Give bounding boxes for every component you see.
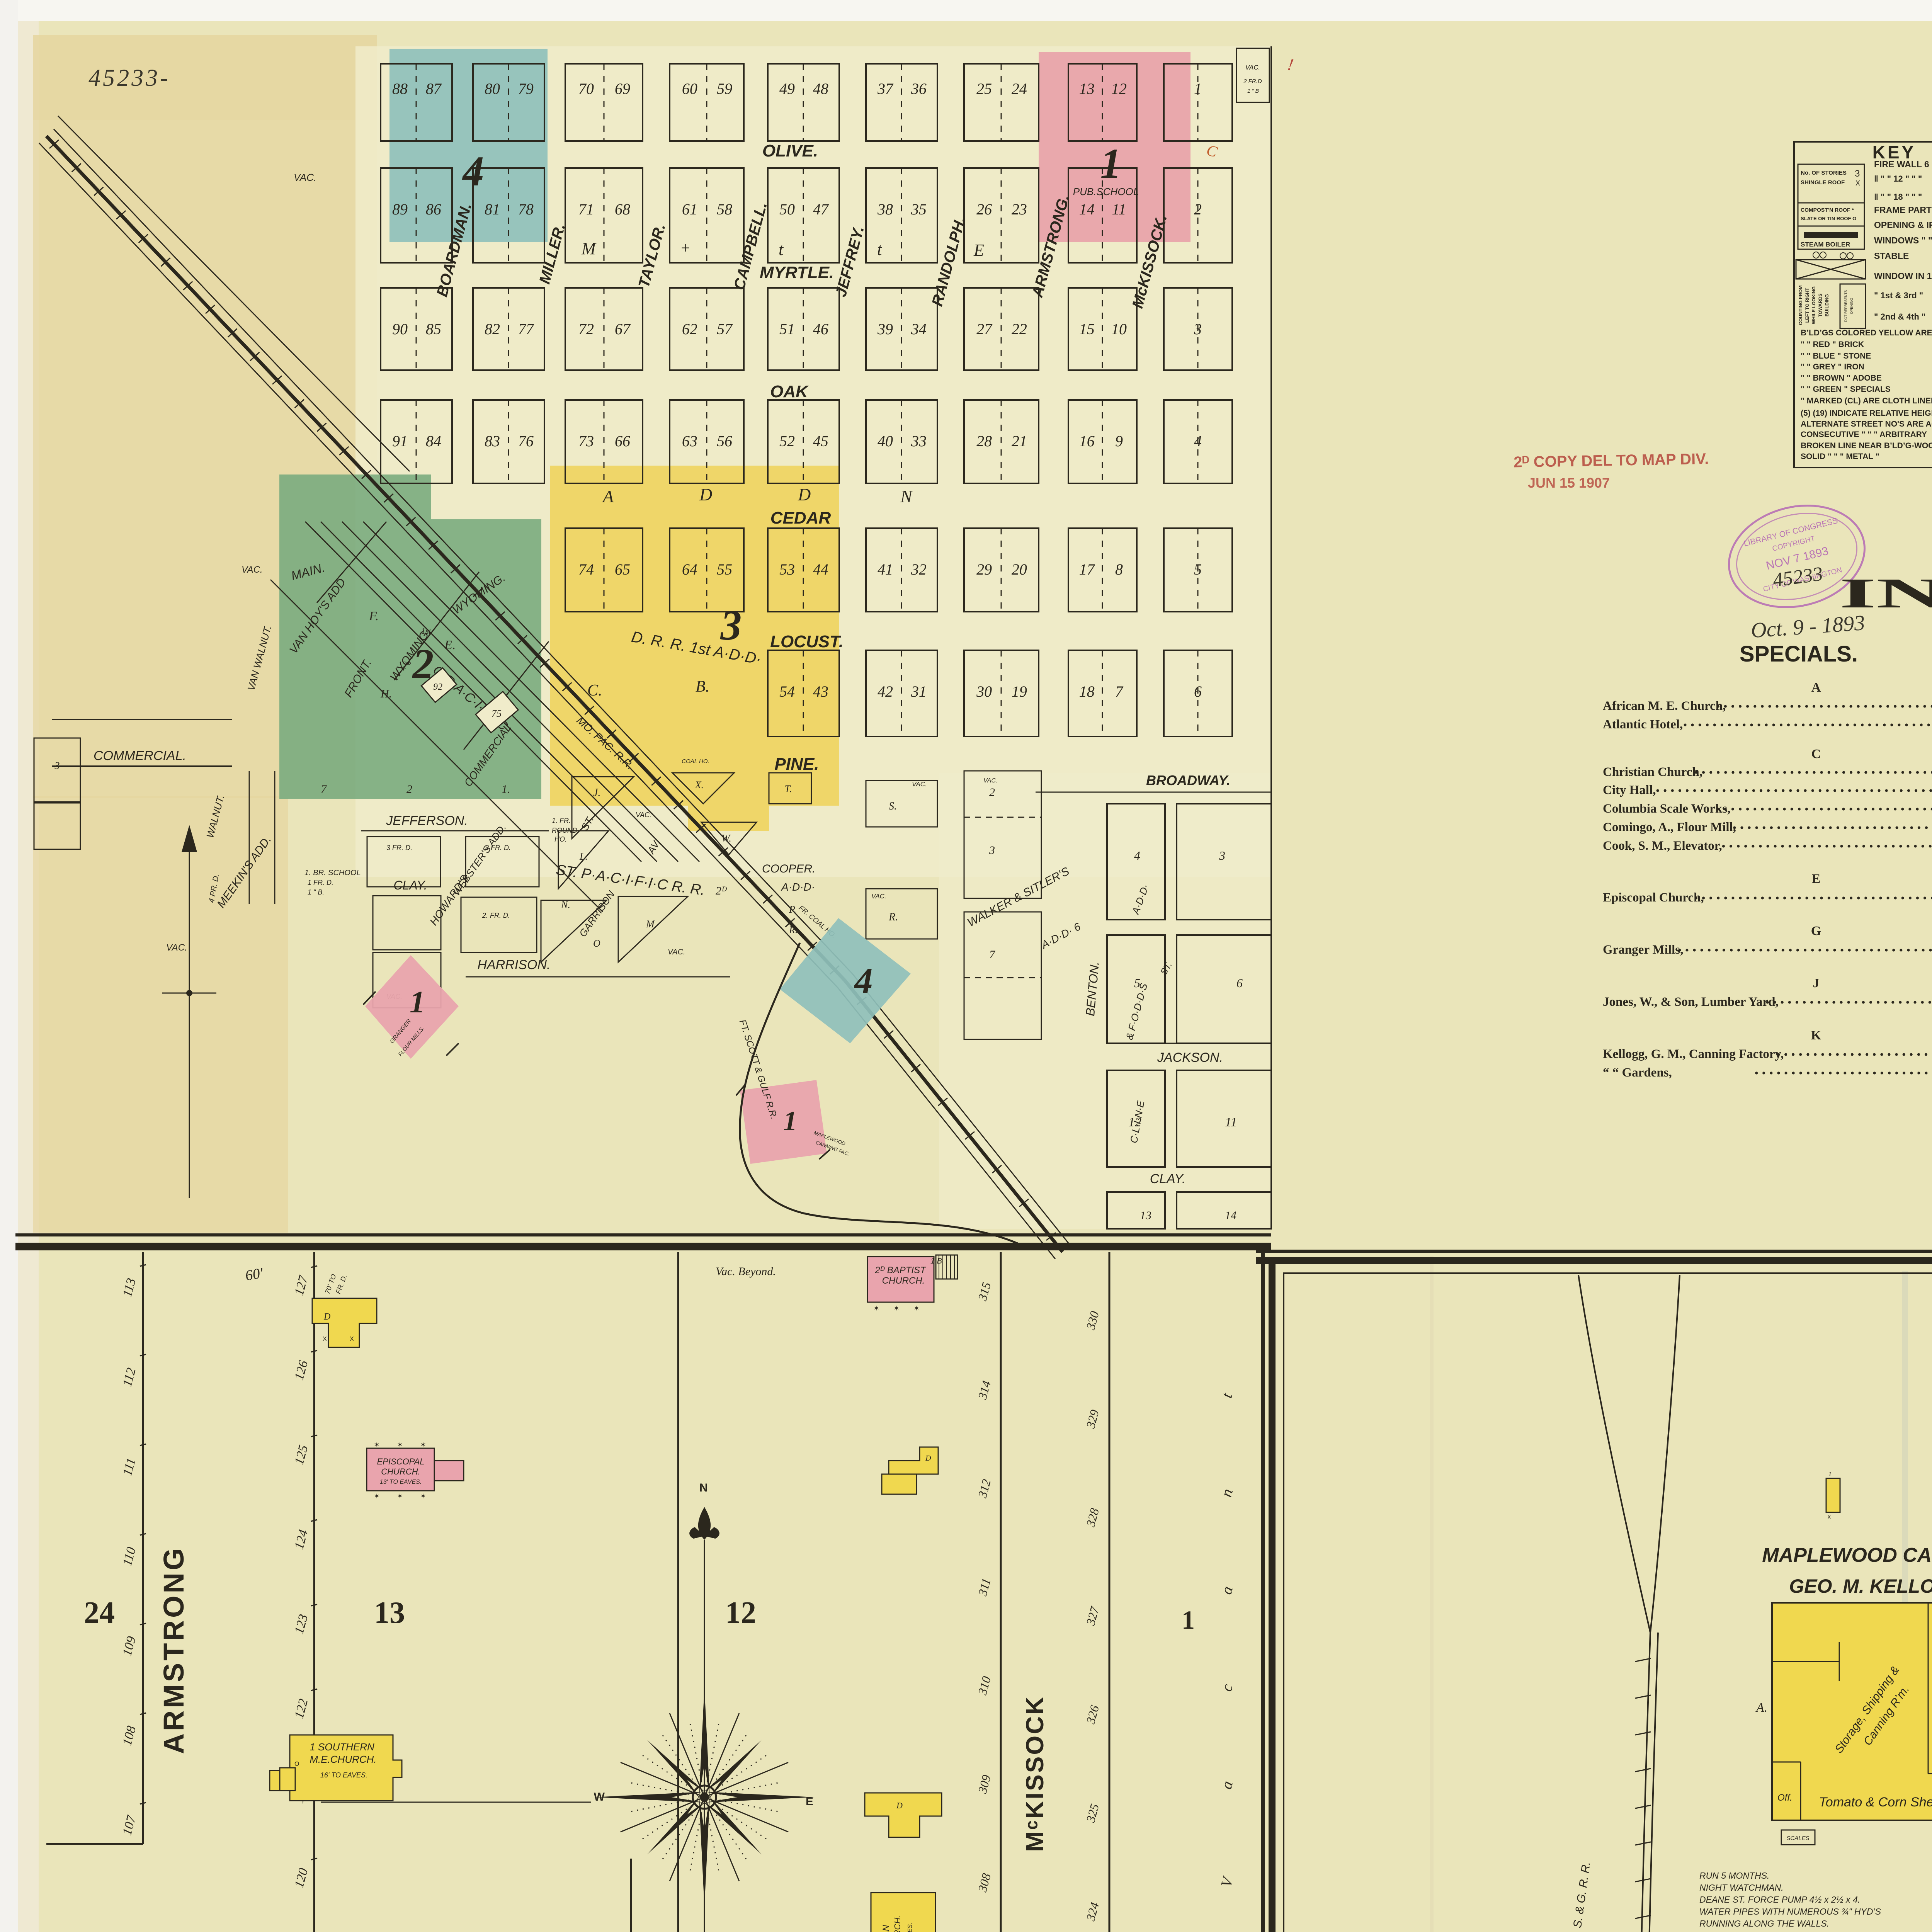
svg-text:Atlantic Hotel,: Atlantic Hotel, xyxy=(1603,718,1683,731)
svg-text:12: 12 xyxy=(725,1596,756,1630)
svg-text:18: 18 xyxy=(1079,683,1095,700)
svg-text:VAC.: VAC. xyxy=(241,565,263,575)
svg-text:✶: ✶ xyxy=(913,1304,919,1312)
svg-text:N.: N. xyxy=(561,899,570,910)
svg-text:Cook, S. M., Elevator,: Cook, S. M., Elevator, xyxy=(1603,839,1722,853)
svg-text:8: 8 xyxy=(1115,561,1123,578)
svg-text:40: 40 xyxy=(878,432,893,450)
svg-text:S.: S. xyxy=(889,800,897,812)
svg-text:VAC.: VAC. xyxy=(1245,64,1260,71)
svg-text:D: D xyxy=(699,485,712,504)
svg-text:RUN 5 MONTHS.: RUN 5 MONTHS. xyxy=(1699,1871,1769,1881)
svg-text:47: 47 xyxy=(813,201,829,218)
svg-text:EPISCOPAL: EPISCOPAL xyxy=(377,1457,424,1466)
svg-text:CEDAR: CEDAR xyxy=(770,509,831,527)
svg-text:88: 88 xyxy=(392,80,408,97)
svg-text:50: 50 xyxy=(779,201,795,218)
svg-text:24: 24 xyxy=(84,1596,115,1630)
svg-text:AFRICAN: AFRICAN xyxy=(881,1925,891,1932)
svg-text:11: 11 xyxy=(1225,1115,1237,1129)
svg-text:5: 5 xyxy=(1194,561,1202,578)
svg-text:59: 59 xyxy=(717,80,732,97)
svg-text:SOLID " " ": SOLID " " " METAL " xyxy=(1801,452,1879,461)
svg-text:X: X xyxy=(1855,179,1860,187)
svg-text:✶: ✶ xyxy=(873,1304,879,1312)
svg-text:VAC.: VAC. xyxy=(668,948,685,956)
svg-text:38: 38 xyxy=(877,201,893,218)
svg-text:" " BLUE: " " BLUE " STONE xyxy=(1801,352,1871,361)
svg-text:44: 44 xyxy=(813,561,828,578)
svg-text:SLATE OR TIN ROOF O: SLATE OR TIN ROOF O xyxy=(1801,216,1856,221)
svg-text:12: 12 xyxy=(1111,80,1127,97)
svg-text:" " BROWN ": " " BROWN " ADOBE xyxy=(1801,374,1882,383)
svg-text:GEO. M. KELLOGG.: GEO. M. KELLOGG. xyxy=(1789,1575,1932,1597)
svg-text:HO.: HO. xyxy=(554,835,567,843)
svg-text:COMMERCIAL.: COMMERCIAL. xyxy=(94,748,186,763)
svg-text:Granger Mills,: Granger Mills, xyxy=(1603,943,1683,957)
svg-text:✶: ✶ xyxy=(374,1492,379,1500)
svg-text:" 1st & 3rd ": " 1st & 3rd " xyxy=(1874,291,1923,300)
svg-text:STEAM BOILER: STEAM BOILER xyxy=(1801,241,1850,248)
svg-text:3: 3 xyxy=(1219,849,1225,862)
svg-text:11: 11 xyxy=(1112,201,1126,218)
svg-text:3: 3 xyxy=(1855,168,1860,179)
svg-text:76: 76 xyxy=(518,432,534,450)
svg-text:" " GREY: " " GREY " IRON xyxy=(1801,362,1864,371)
svg-text:LEFT TO RIGHT: LEFT TO RIGHT xyxy=(1804,287,1810,323)
svg-text:X.: X. xyxy=(695,779,704,791)
svg-text:4: 4 xyxy=(462,148,484,195)
svg-text:2: 2 xyxy=(1194,201,1202,218)
svg-text:82: 82 xyxy=(485,320,500,338)
svg-text:O: O xyxy=(294,1761,299,1767)
svg-text:MᶜKISSOCK: MᶜKISSOCK xyxy=(1021,1695,1049,1852)
svg-text:D: D xyxy=(896,1801,903,1810)
svg-text:31: 31 xyxy=(911,683,927,700)
svg-text:WHILE LOOKING: WHILE LOOKING xyxy=(1811,286,1816,324)
svg-text:C.: C. xyxy=(587,682,602,699)
svg-text:90: 90 xyxy=(392,320,408,338)
svg-text:BROKEN LINE NEAR B’LD’G-WOOD C: BROKEN LINE NEAR B’LD’G-WOOD CORNICE xyxy=(1801,441,1932,450)
svg-text:SPECIALS.: SPECIALS. xyxy=(1740,641,1858,667)
svg-text:3 FR. D.: 3 FR. D. xyxy=(386,844,412,852)
svg-text:92: 92 xyxy=(433,682,442,692)
svg-text:FIRE WALL 6 IN. AB. ROOF: FIRE WALL 6 IN. AB. ROOF xyxy=(1874,159,1932,169)
svg-text:7: 7 xyxy=(989,948,996,961)
svg-text:✶: ✶ xyxy=(397,1441,403,1449)
svg-text:1 FR. D.: 1 FR. D. xyxy=(308,879,333,886)
svg-text:85: 85 xyxy=(426,320,441,338)
svg-text:Vac. Beyond.: Vac. Beyond. xyxy=(716,1265,776,1278)
svg-text:LOCUST.: LOCUST. xyxy=(770,632,844,651)
svg-text:71: 71 xyxy=(578,201,594,218)
svg-text:25: 25 xyxy=(976,80,992,97)
svg-text:32: 32 xyxy=(911,561,927,578)
svg-text:‖ " " 18 " " ": ‖ " " 18 " " " xyxy=(1874,192,1922,202)
svg-text:" 2nd & 4th ": " 2nd & 4th " xyxy=(1874,312,1925,321)
svg-text:35: 35 xyxy=(911,201,927,218)
svg-text:86: 86 xyxy=(426,201,441,218)
svg-text:37: 37 xyxy=(877,80,894,97)
svg-text:x: x xyxy=(1828,1514,1831,1520)
svg-text:Comingo, A., Flour Mill,: Comingo, A., Flour Mill, xyxy=(1603,820,1736,834)
svg-text:1.: 1. xyxy=(502,783,510,796)
svg-text:13: 13 xyxy=(1079,80,1095,97)
svg-text:58: 58 xyxy=(717,201,732,218)
svg-text:City Hall,: City Hall, xyxy=(1603,783,1656,797)
svg-text:22: 22 xyxy=(1012,320,1027,338)
svg-text:VAC.: VAC. xyxy=(912,781,927,788)
svg-text:49: 49 xyxy=(779,80,795,97)
svg-text:46: 46 xyxy=(813,320,828,338)
svg-text:C: C xyxy=(1811,747,1821,761)
svg-text:4: 4 xyxy=(854,960,873,1001)
svg-text:ALTERNATE STREET NO'S ARE ACTU: ALTERNATE STREET NO'S ARE ACTUAL xyxy=(1801,420,1932,429)
svg-text:27: 27 xyxy=(976,320,993,338)
svg-text:P.: P. xyxy=(789,904,796,915)
svg-text:2ᴰ COPY DEL TO MAP DIV.: 2ᴰ COPY DEL TO MAP DIV. xyxy=(1514,451,1709,471)
svg-text:69: 69 xyxy=(615,80,630,97)
svg-text:(5) (19) INDICATE RELATIVE HEI: (5) (19) INDICATE RELATIVE HEIGHTS xyxy=(1801,409,1932,418)
svg-text:COOPER.: COOPER. xyxy=(762,862,815,875)
svg-text:SHINGLE ROOF: SHINGLE ROOF xyxy=(1801,179,1845,186)
svg-text:M.: M. xyxy=(646,918,657,930)
svg-text:M: M xyxy=(581,239,597,258)
svg-text:H.: H. xyxy=(380,687,392,700)
svg-text:✶: ✶ xyxy=(420,1492,426,1500)
svg-text:WATER PIPES WITH NUMEROUS ¾" H: WATER PIPES WITH NUMEROUS ¾" HYD’S xyxy=(1699,1906,1881,1917)
svg-text:61: 61 xyxy=(682,201,697,218)
svg-text:10: 10 xyxy=(1111,320,1127,338)
svg-text:African M. E. Church,: African M. E. Church, xyxy=(1603,699,1726,713)
svg-text:A.: A. xyxy=(1755,1701,1767,1715)
svg-text:Episcopal Church,: Episcopal Church, xyxy=(1603,891,1704,905)
svg-text:1: 1 xyxy=(1100,140,1122,187)
svg-text:RUNNING ALONG THE WALLS.: RUNNING ALONG THE WALLS. xyxy=(1699,1918,1829,1929)
svg-text:D: D xyxy=(798,485,811,504)
svg-text:J.: J. xyxy=(593,787,600,799)
svg-text:Kellogg, G. M., Canning Factor: Kellogg, G. M., Canning Factory, xyxy=(1603,1047,1784,1061)
svg-text:14: 14 xyxy=(1225,1209,1236,1222)
svg-text:F.: F. xyxy=(369,609,379,623)
svg-text:OLIVE.: OLIVE. xyxy=(762,141,818,160)
svg-text:2: 2 xyxy=(989,786,995,799)
svg-text:74: 74 xyxy=(578,561,594,578)
svg-text:BROADWAY.: BROADWAY. xyxy=(1146,772,1230,788)
svg-text:CHURCH.: CHURCH. xyxy=(882,1276,925,1286)
svg-text:78: 78 xyxy=(518,201,534,218)
svg-text:OAK: OAK xyxy=(770,382,809,401)
svg-text:J: J xyxy=(1813,976,1820,990)
svg-text:PUB.SCHOOL: PUB.SCHOOL xyxy=(1073,186,1139,197)
svg-text:53: 53 xyxy=(779,561,795,578)
svg-text:A: A xyxy=(602,486,614,506)
svg-text:“ “ Gardens,: “ “ Gardens, xyxy=(1603,1066,1672,1080)
svg-text:54: 54 xyxy=(779,683,795,700)
svg-text:16' TO EAVES.: 16' TO EAVES. xyxy=(320,1771,367,1779)
svg-text:R.: R. xyxy=(888,911,898,923)
svg-text:R.: R. xyxy=(789,924,798,935)
svg-text:73: 73 xyxy=(578,432,594,450)
svg-text:✶: ✶ xyxy=(420,1441,426,1449)
svg-text:E.: E. xyxy=(444,638,456,652)
svg-text:36: 36 xyxy=(911,80,927,97)
svg-text:29: 29 xyxy=(976,561,992,578)
svg-text:VAC.: VAC. xyxy=(636,811,651,819)
svg-text:60': 60' xyxy=(244,1265,265,1284)
svg-text:79: 79 xyxy=(518,80,534,97)
svg-text:9: 9 xyxy=(1115,432,1123,450)
svg-text:T.: T. xyxy=(784,783,792,794)
svg-text:4: 4 xyxy=(1194,432,1202,450)
svg-text:BUILDING: BUILDING xyxy=(1824,294,1830,316)
svg-text:20: 20 xyxy=(1012,561,1027,578)
svg-text:45233-: 45233- xyxy=(88,65,170,91)
svg-text:t: t xyxy=(877,240,883,259)
svg-text:Columbia Scale Works,: Columbia Scale Works, xyxy=(1603,802,1730,816)
svg-text:28: 28 xyxy=(976,432,992,450)
svg-text:19: 19 xyxy=(1012,683,1027,700)
svg-text:30: 30 xyxy=(976,683,992,700)
svg-text:A: A xyxy=(1811,680,1821,695)
svg-text:80: 80 xyxy=(485,80,500,97)
svg-text:55: 55 xyxy=(717,561,732,578)
svg-text:1st: 1st xyxy=(421,626,432,636)
svg-text:E: E xyxy=(973,241,984,260)
svg-text:63: 63 xyxy=(682,432,697,450)
svg-text:1: 1 xyxy=(783,1105,797,1136)
svg-text:E: E xyxy=(1812,872,1821,886)
svg-text:WINDOW IN 1st STORY: WINDOW IN 1st STORY xyxy=(1874,271,1932,281)
svg-text:" MARKED (CL) ARE CLOTH LIN: " MARKED (CL) ARE CLOTH LINED xyxy=(1801,396,1932,405)
svg-text:JEFFERSON.: JEFFERSON. xyxy=(386,813,468,828)
svg-text:WINDOWS " " SHUTTERS: WINDOWS " " SHUTTERS xyxy=(1874,235,1932,245)
svg-text:42: 42 xyxy=(878,683,893,700)
svg-text:✶: ✶ xyxy=(397,1492,403,1500)
svg-text:COMPOST'N ROOF *: COMPOST'N ROOF * xyxy=(1801,207,1854,213)
svg-text:7: 7 xyxy=(1115,683,1124,700)
svg-text:‖ " " 12 " " ": ‖ " " 12 " " " xyxy=(1874,174,1922,184)
svg-text:" " RED: " " RED " BRICK xyxy=(1801,340,1864,349)
svg-text:1: 1 xyxy=(1194,80,1202,97)
svg-text:OPENING: OPENING xyxy=(1850,298,1854,314)
svg-text:51: 51 xyxy=(779,320,795,338)
svg-text:2 FR.D: 2 FR.D xyxy=(1243,78,1262,85)
svg-text:81: 81 xyxy=(485,201,500,218)
svg-text:43: 43 xyxy=(813,683,828,700)
svg-text:56: 56 xyxy=(717,432,732,450)
svg-text:100’ ¾" HOSE.: 100’ ¾" HOSE. xyxy=(1699,1930,1759,1932)
svg-text:60: 60 xyxy=(682,80,697,97)
svg-text:2. FR. D.: 2. FR. D. xyxy=(482,912,510,919)
svg-text:45: 45 xyxy=(813,432,828,450)
svg-text:O: O xyxy=(593,938,600,949)
svg-text:X: X xyxy=(350,1336,354,1342)
svg-text:✶: ✶ xyxy=(374,1441,379,1449)
svg-text:A·D·D·: A·D·D· xyxy=(781,881,815,893)
svg-text:6: 6 xyxy=(1194,683,1202,700)
svg-text:W.: W. xyxy=(721,833,731,844)
svg-text:75: 75 xyxy=(492,708,502,719)
svg-text:6: 6 xyxy=(1236,976,1243,990)
svg-text:2: 2 xyxy=(406,783,412,796)
svg-text:JACKSON.: JACKSON. xyxy=(1157,1050,1223,1065)
svg-text:3: 3 xyxy=(720,602,742,649)
svg-text:N: N xyxy=(699,1481,708,1494)
svg-text:52: 52 xyxy=(779,432,795,450)
svg-text:4: 4 xyxy=(1134,849,1140,862)
svg-text:64: 64 xyxy=(682,561,697,578)
svg-text:DOT REPRESENTS: DOT REPRESENTS xyxy=(1844,290,1848,322)
svg-text:B’LD’GS COLORED YELLOW ARE FRA: B’LD’GS COLORED YELLOW ARE FRAME xyxy=(1801,328,1932,337)
svg-text:62: 62 xyxy=(682,320,697,338)
svg-text:13' TO EAVES.: 13' TO EAVES. xyxy=(380,1479,422,1485)
svg-text:2ᴰ: 2ᴰ xyxy=(716,884,727,897)
svg-text:STABLE: STABLE xyxy=(1874,251,1909,261)
svg-text:Tomato & Corn Shed.: Tomato & Corn Shed. xyxy=(1819,1795,1932,1810)
svg-text:X: X xyxy=(323,1336,327,1342)
svg-text:1 " B: 1 " B xyxy=(1247,88,1259,94)
svg-text:3: 3 xyxy=(54,760,60,771)
svg-text:JUN 15 1907: JUN 15 1907 xyxy=(1528,475,1610,491)
svg-text:SCALES: SCALES xyxy=(1786,1835,1809,1842)
svg-text:VAC.: VAC. xyxy=(166,942,187,953)
svg-text:89: 89 xyxy=(392,201,408,218)
svg-text:ROUND: ROUND xyxy=(552,827,577,834)
svg-text:COUNTING FROM: COUNTING FROM xyxy=(1798,286,1803,325)
svg-text:MYRTLE.: MYRTLE. xyxy=(760,263,834,282)
svg-text:N: N xyxy=(900,486,913,506)
svg-text:2°: 2° xyxy=(402,660,411,671)
svg-text:1. BR. SCHOOL: 1. BR. SCHOOL xyxy=(304,869,361,877)
svg-text:65: 65 xyxy=(615,561,630,578)
svg-text:PINE.: PINE. xyxy=(775,755,819,774)
svg-text:CONSECUTIVE " " " AR: CONSECUTIVE " " " ARBITRARY xyxy=(1801,430,1927,439)
svg-text:DEANE ST. FORCE PUMP 4½ x 2½ x: DEANE ST. FORCE PUMP 4½ x 2½ x 4. xyxy=(1699,1895,1860,1905)
svg-text:Off.: Off. xyxy=(1777,1793,1793,1803)
svg-text:t: t xyxy=(779,240,784,259)
svg-text:15: 15 xyxy=(1079,320,1095,338)
svg-text:VAC.: VAC. xyxy=(983,777,997,784)
svg-text:13: 13 xyxy=(1140,1209,1151,1222)
svg-text:COAL HO.: COAL HO. xyxy=(682,758,709,765)
svg-text:68: 68 xyxy=(615,201,630,218)
svg-text:3: 3 xyxy=(1194,320,1202,338)
svg-text:No. OF STORIES: No. OF STORIES xyxy=(1801,170,1847,176)
svg-text:26: 26 xyxy=(976,201,992,218)
svg-text:K: K xyxy=(1811,1028,1821,1043)
svg-text:84: 84 xyxy=(426,432,441,450)
svg-text:33: 33 xyxy=(911,432,927,450)
svg-text:17: 17 xyxy=(1079,561,1095,578)
svg-text:87: 87 xyxy=(426,80,442,97)
svg-text:1 SOUTHERN: 1 SOUTHERN xyxy=(310,1741,374,1753)
svg-text:3: 3 xyxy=(989,844,995,857)
svg-text:91: 91 xyxy=(392,432,408,450)
svg-text:1: 1 xyxy=(1182,1605,1195,1634)
svg-text:39: 39 xyxy=(877,320,893,338)
svg-text:VAC.: VAC. xyxy=(871,893,886,900)
svg-text:7: 7 xyxy=(321,783,327,796)
svg-text:67: 67 xyxy=(615,320,631,338)
svg-text:D: D xyxy=(925,1454,931,1463)
svg-text:1: 1 xyxy=(410,985,425,1019)
svg-text:NIGHT WATCHMAN.: NIGHT WATCHMAN. xyxy=(1699,1883,1784,1893)
svg-text:72: 72 xyxy=(578,320,594,338)
svg-text:ARMSTRONG: ARMSTRONG xyxy=(158,1546,190,1754)
svg-text:1: 1 xyxy=(1828,1471,1832,1478)
svg-text:14' TO EAVES.: 14' TO EAVES. xyxy=(907,1923,913,1932)
svg-text:G: G xyxy=(1811,924,1821,938)
svg-text:M.E.CHURCH.: M.E.CHURCH. xyxy=(893,1915,902,1932)
svg-text:13: 13 xyxy=(374,1596,405,1630)
svg-text:66: 66 xyxy=(615,432,630,450)
svg-text:24: 24 xyxy=(1012,80,1027,97)
svg-text:83: 83 xyxy=(485,432,500,450)
svg-text:1 " B.: 1 " B. xyxy=(308,888,324,896)
svg-text:34: 34 xyxy=(911,320,927,338)
svg-text:HARRISON.: HARRISON. xyxy=(478,957,551,972)
svg-text:+: + xyxy=(680,239,690,257)
svg-text:VAC.: VAC. xyxy=(294,172,316,183)
svg-text:77: 77 xyxy=(518,320,534,338)
svg-text:57: 57 xyxy=(717,320,733,338)
svg-text:21: 21 xyxy=(1012,432,1027,450)
svg-text:CHURCH.: CHURCH. xyxy=(381,1467,420,1476)
svg-text:" " GREEN ": " " GREEN " SPECIALS xyxy=(1801,385,1891,394)
svg-text:16: 16 xyxy=(1079,432,1095,450)
svg-text:48: 48 xyxy=(813,80,828,97)
svg-text:OPENING & IRON DOOR: OPENING & IRON DOOR xyxy=(1874,220,1932,230)
svg-text:Jones, W., & Son, Lumber Yard,: Jones, W., & Son, Lumber Yard, xyxy=(1603,995,1779,1009)
svg-text:FRAME PARTITION: FRAME PARTITION xyxy=(1874,205,1932,215)
svg-text:2ᴰ BAPTIST: 2ᴰ BAPTIST xyxy=(874,1265,927,1276)
svg-text:M.E.CHURCH.: M.E.CHURCH. xyxy=(310,1753,376,1765)
svg-text:MAPLEWOOD CANNING FAC.: MAPLEWOOD CANNING FAC. xyxy=(1762,1544,1932,1566)
svg-text:B.: B. xyxy=(696,678,709,696)
svg-text:✶: ✶ xyxy=(893,1304,899,1312)
svg-text:1. FR.: 1. FR. xyxy=(552,817,571,825)
svg-text:70: 70 xyxy=(578,80,594,97)
svg-text:41: 41 xyxy=(878,561,893,578)
svg-text:INDEX.: INDEX. xyxy=(1839,570,1932,617)
svg-text:CLAY.: CLAY. xyxy=(1150,1172,1186,1186)
svg-text:14: 14 xyxy=(1079,201,1095,218)
svg-text:TOWARDS: TOWARDS xyxy=(1818,293,1823,317)
svg-text:23: 23 xyxy=(1012,201,1027,218)
svg-text:D: D xyxy=(323,1312,330,1322)
svg-text:CLAY.: CLAY. xyxy=(393,878,427,892)
svg-text:Christian Church,: Christian Church, xyxy=(1603,765,1702,779)
svg-text:L.: L. xyxy=(579,851,588,862)
